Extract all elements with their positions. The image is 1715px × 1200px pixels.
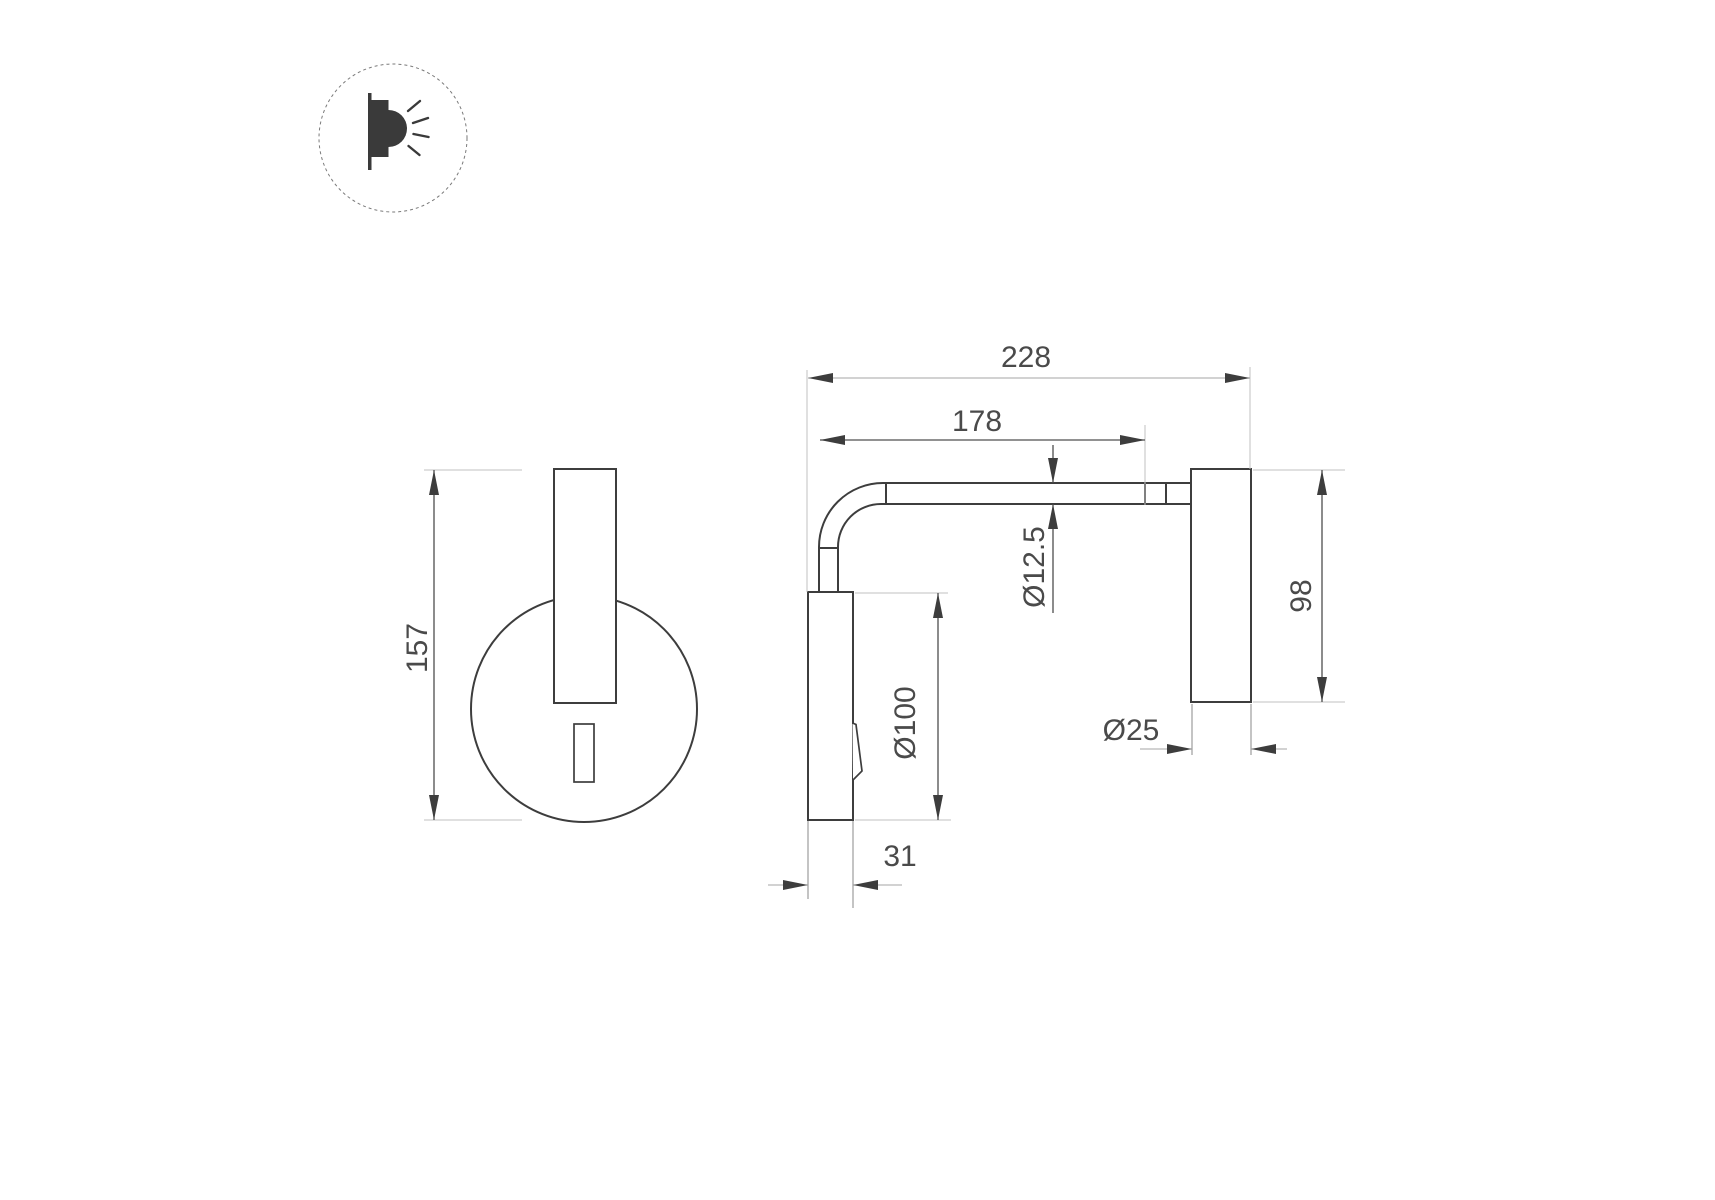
side-switch-lever [853, 723, 863, 780]
arrow-left [820, 435, 845, 445]
dim-side-arm-length: 178 [820, 405, 1145, 505]
side-lamp-head [1191, 469, 1251, 702]
arrow-right [1167, 744, 1192, 754]
head-height-label: 98 [1285, 579, 1318, 612]
icon-wall-bar [368, 93, 372, 170]
dim-side-plate-depth: 31 [768, 821, 917, 908]
dim-side-head-height: 98 [1253, 470, 1345, 702]
arrow-up [933, 593, 943, 618]
arrow-up [429, 470, 439, 495]
side-view [808, 469, 1251, 820]
front-view [471, 469, 697, 822]
dim-side-plate-diameter: Ø100 [855, 593, 951, 820]
side-wall-plate [808, 592, 853, 820]
arrow-down [429, 795, 439, 820]
front-height-label: 157 [401, 623, 434, 673]
head-diameter-label: Ø25 [1103, 714, 1160, 747]
wall-light-icon [319, 64, 467, 212]
overall-length-label: 228 [1001, 341, 1051, 374]
icon-lamp-body [372, 100, 389, 157]
arrow-right [1225, 373, 1250, 383]
elbow-inner-arc [838, 504, 881, 547]
lamp-dimension-drawing: 157 228 178 [0, 0, 1715, 1200]
front-switch [574, 724, 594, 782]
plate-diameter-label: Ø100 [889, 686, 922, 759]
arrow-up [1317, 470, 1327, 495]
tube-diameter-label: Ø12.5 [1018, 526, 1051, 608]
dim-side-head-diameter: Ø25 [1103, 704, 1287, 755]
arrow-down [1048, 458, 1058, 483]
arrow-up [1048, 504, 1058, 529]
arrow-left [853, 880, 878, 890]
arrow-right [1120, 435, 1145, 445]
arrow-right [783, 880, 808, 890]
arrow-down [933, 795, 943, 820]
arm-length-label: 178 [952, 405, 1002, 438]
dim-side-tube-diameter: Ø12.5 [1018, 445, 1058, 613]
plate-depth-label: 31 [883, 840, 916, 873]
arrow-down [1317, 677, 1327, 702]
technical-drawing-page: 157 228 178 [0, 0, 1715, 1200]
arrow-left [1251, 744, 1276, 754]
front-lamp-arm [554, 469, 616, 703]
arrow-left [808, 373, 833, 383]
